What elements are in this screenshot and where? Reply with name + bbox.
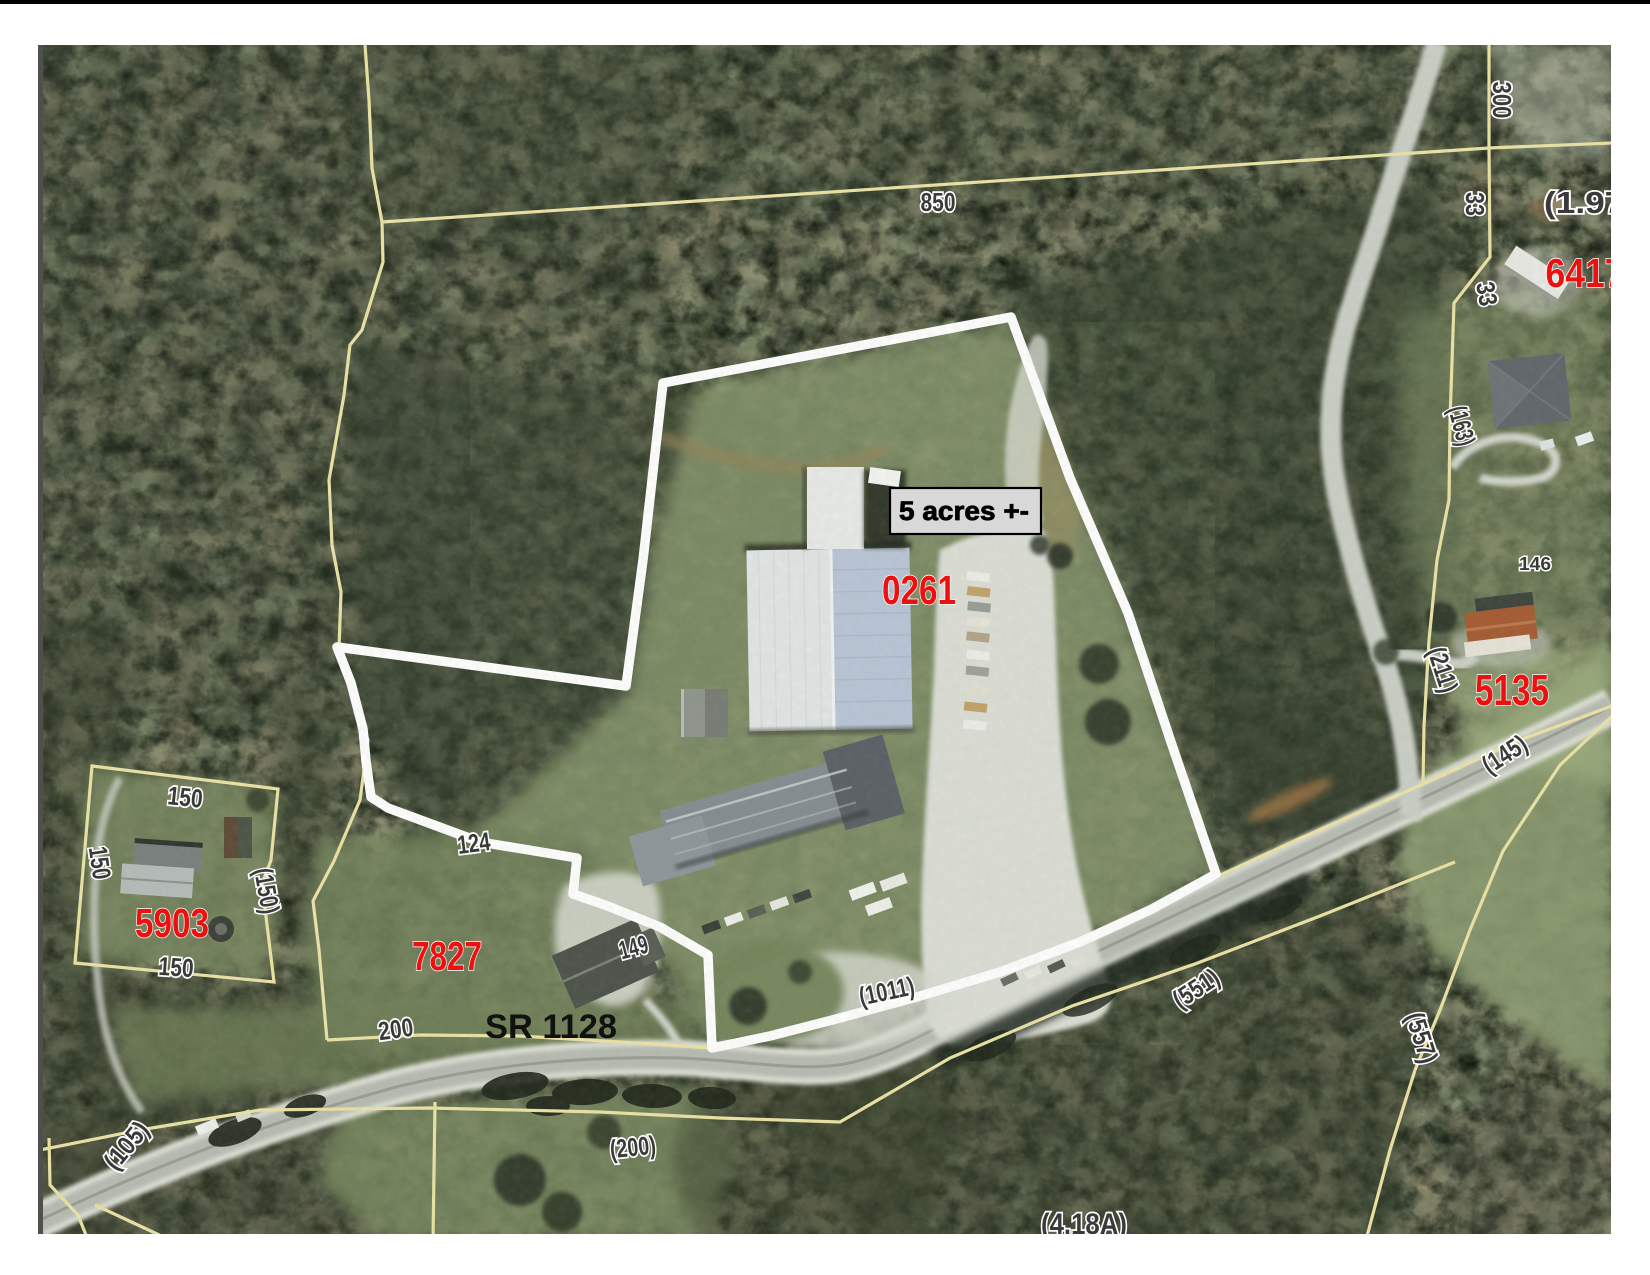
svg-text:150: 150 (166, 780, 204, 813)
svg-text:0261: 0261 (882, 567, 956, 613)
svg-text:33: 33 (1460, 192, 1490, 216)
svg-text:850: 850 (921, 187, 956, 217)
svg-text:300: 300 (1487, 82, 1517, 119)
svg-text:5135: 5135 (1475, 666, 1549, 715)
svg-text:5903: 5903 (135, 900, 209, 946)
svg-text:150: 150 (158, 951, 195, 983)
svg-text:SR 1128: SR 1128 (485, 1008, 617, 1046)
svg-text:124: 124 (456, 826, 493, 860)
svg-text:150: 150 (83, 844, 117, 881)
svg-text:200: 200 (376, 1012, 415, 1047)
svg-text:(200): (200) (608, 1130, 657, 1165)
svg-text:146: 146 (1519, 554, 1551, 574)
svg-text:5 acres +-: 5 acres +- (899, 496, 1029, 526)
svg-text:7827: 7827 (412, 933, 482, 979)
svg-text:33: 33 (1470, 279, 1504, 308)
